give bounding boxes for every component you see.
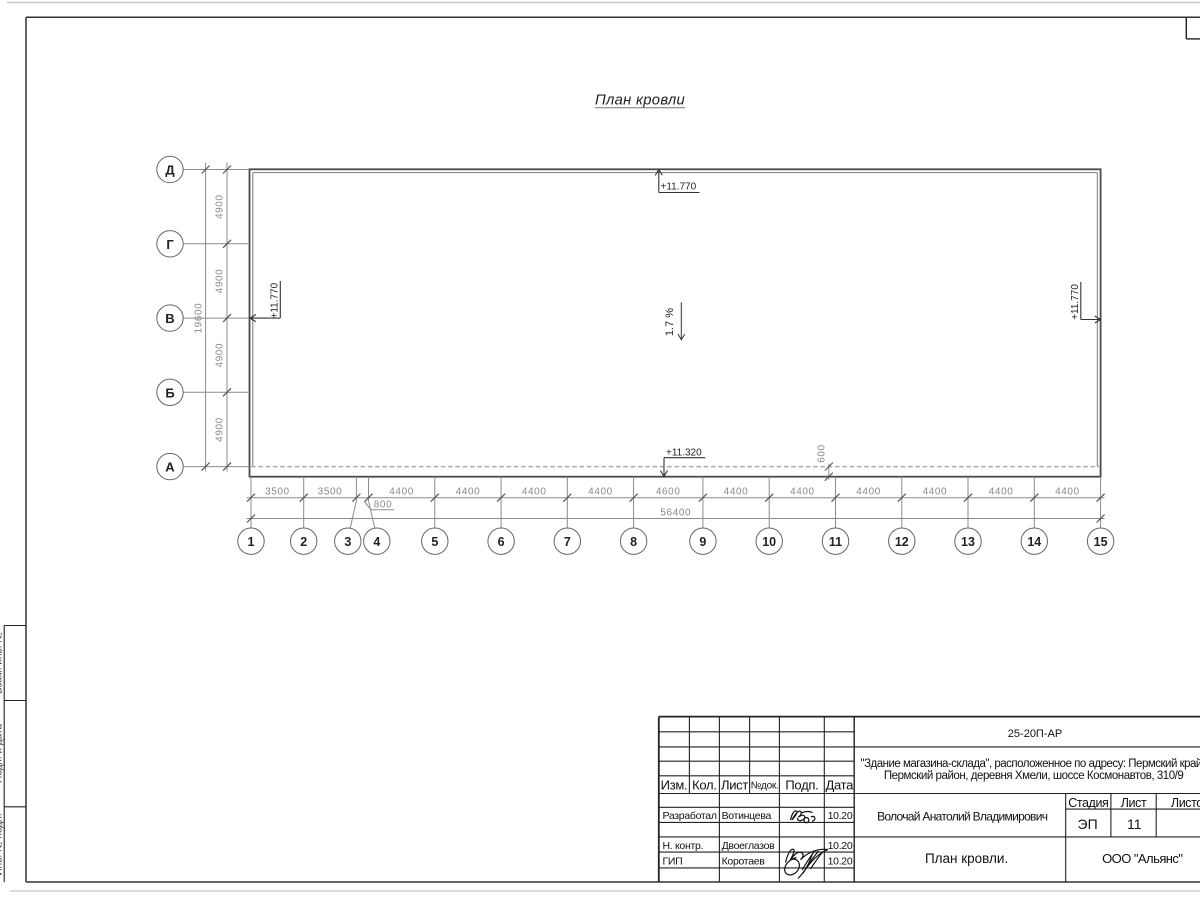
svg-text:Подп. и дата: Подп. и дата [0,724,5,783]
svg-text:5: 5 [431,535,438,549]
svg-text:4400: 4400 [989,486,1014,497]
svg-text:Взам. инв. №: Взам. инв. № [0,632,5,694]
svg-text:4400: 4400 [522,486,547,497]
svg-text:Листов: Листов [1171,796,1200,810]
svg-text:Разработал: Разработал [663,810,717,822]
svg-text:ЭП: ЭП [1078,816,1098,832]
svg-text:Подп.: Подп. [785,777,818,792]
svg-text:Дата: Дата [826,777,855,792]
svg-text:4900: 4900 [215,343,226,368]
svg-text:Коротаев: Коротаев [722,856,766,868]
svg-text:Н. контр.: Н. контр. [663,840,704,852]
svg-text:4400: 4400 [588,486,613,497]
svg-text:Волочай Анатолий Владимирович: Волочай Анатолий Владимирович [877,810,1048,824]
svg-text:Двоеглазов: Двоеглазов [722,840,776,852]
svg-text:В: В [165,311,174,326]
svg-text:+11.770: +11.770 [661,182,697,193]
svg-text:Б: Б [165,385,174,400]
svg-text:Г: Г [166,237,174,252]
svg-text:12: 12 [895,535,909,549]
svg-text:ООО "Альянс": ООО "Альянс" [1102,851,1183,866]
svg-text:13: 13 [961,535,975,549]
svg-text:4400: 4400 [724,486,749,497]
svg-text:56400: 56400 [660,507,691,518]
svg-text:Лист: Лист [721,777,748,792]
svg-text:2: 2 [300,535,307,549]
svg-text:4400: 4400 [389,486,414,497]
svg-text:10: 10 [762,535,776,549]
svg-text:7: 7 [564,535,571,549]
svg-text:Лист: Лист [1121,796,1147,810]
svg-text:15: 15 [1094,535,1108,549]
svg-text:+11.770: +11.770 [1070,284,1081,320]
svg-text:14: 14 [1027,535,1041,549]
svg-text:3500: 3500 [318,486,343,497]
svg-text:4900: 4900 [215,417,226,442]
svg-text:+11.320: +11.320 [666,447,702,458]
svg-text:10.20: 10.20 [828,810,853,822]
svg-text:11: 11 [1127,816,1142,832]
svg-text:3500: 3500 [265,486,290,497]
svg-text:4900: 4900 [215,194,226,219]
svg-text:4400: 4400 [856,486,881,497]
svg-text:8: 8 [630,535,637,549]
svg-text:№док.: №док. [751,781,779,792]
svg-text:Кол.: Кол. [692,777,717,792]
svg-text:Инв. № подл.: Инв. № подл. [0,813,5,875]
svg-text:25-20П-АР: 25-20П-АР [1008,728,1062,740]
svg-text:19600: 19600 [194,303,205,334]
svg-text:4: 4 [373,535,380,549]
svg-text:ГИП: ГИП [663,856,683,868]
svg-text:1.7 %: 1.7 % [664,308,676,336]
svg-text:9: 9 [699,535,706,549]
svg-text:"Здание магазина-склада", расп: "Здание магазина-склада", расположенное … [861,758,1200,770]
svg-text:4400: 4400 [790,486,815,497]
svg-text:600: 600 [816,444,827,463]
svg-text:Вотинцева: Вотинцева [722,810,772,822]
svg-text:Д: Д [165,163,175,178]
svg-text:4400: 4400 [1055,486,1080,497]
svg-text:А: А [165,460,175,475]
svg-text:6: 6 [498,535,505,549]
svg-text:+11.770: +11.770 [269,282,280,318]
svg-text:4600: 4600 [656,486,681,497]
svg-text:1: 1 [248,535,255,549]
svg-text:4900: 4900 [215,269,226,294]
svg-text:4400: 4400 [923,486,948,497]
svg-text:Пермский район, деревня Хмели,: Пермский район, деревня Хмели, шоссе Кос… [884,770,1184,782]
svg-text:4400: 4400 [456,486,481,497]
svg-text:Стадия: Стадия [1068,796,1108,810]
svg-text:3: 3 [344,535,351,549]
svg-text:800: 800 [374,499,393,510]
svg-text:План кровли.: План кровли. [925,851,1008,866]
svg-text:10.20: 10.20 [828,856,853,868]
svg-text:11: 11 [829,535,842,549]
svg-text:План кровли: План кровли [595,93,685,109]
svg-text:Изм.: Изм. [661,777,688,792]
svg-text:10.20: 10.20 [828,840,853,852]
